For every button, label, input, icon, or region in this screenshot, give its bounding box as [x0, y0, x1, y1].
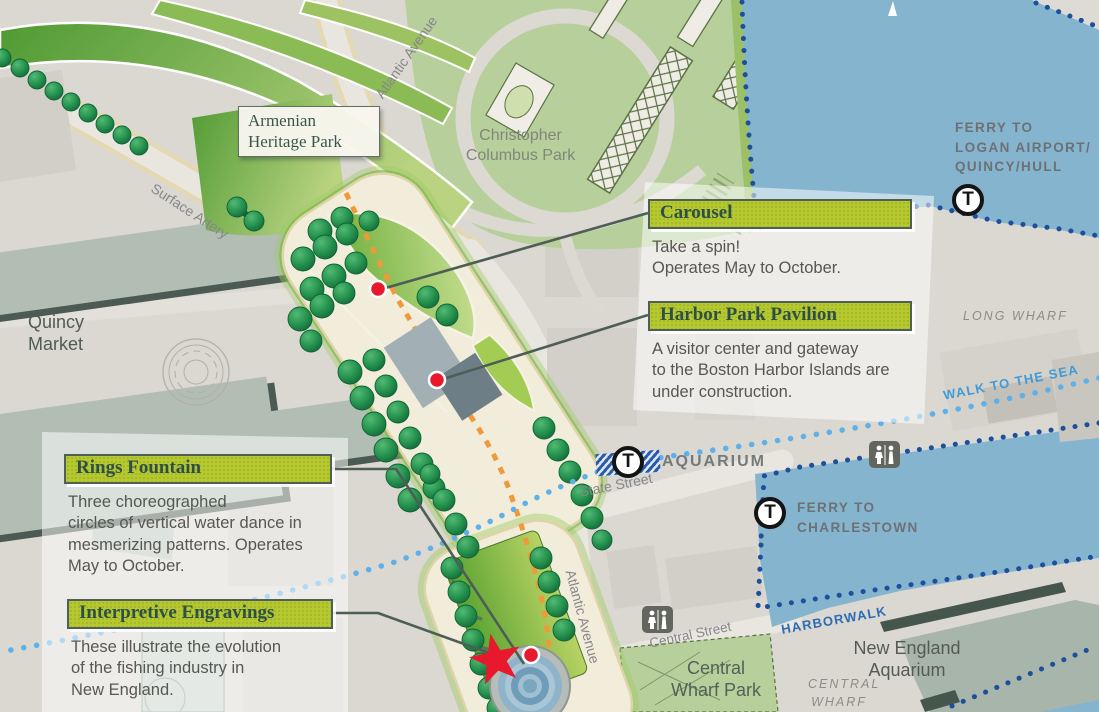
restroom-icon: [642, 606, 673, 633]
pavilion-marker[interactable]: [429, 372, 445, 388]
callout-engravings-body: These illustrate the evolution of the fi…: [71, 637, 281, 701]
ferry-charlestown-label: FERRY TO CHARLESTOWN: [797, 498, 919, 537]
callout-carousel-header[interactable]: Carousel: [648, 199, 912, 229]
restroom-icon: [869, 441, 900, 468]
quincy-market-label: Quincy Market: [28, 312, 84, 356]
fountain-marker[interactable]: [523, 647, 539, 663]
callout-pavilion-body: A visitor center and gateway to the Bost…: [652, 339, 890, 403]
armenian-heritage-park-label: Armenian Heritage Park: [238, 106, 380, 157]
t-station-aquarium-icon[interactable]: T: [612, 446, 644, 478]
aquarium-station-label: AQUARIUM: [662, 452, 766, 472]
restroom-glyphs: [646, 610, 670, 630]
ne-aquarium-label: New England Aquarium: [846, 638, 968, 682]
greenway-map: Armenian Heritage Park Christopher Colum…: [0, 0, 1099, 712]
t-letter: T: [622, 451, 634, 473]
t-letter: T: [962, 189, 974, 211]
central-wharf-park-label: Central Wharf Park: [658, 658, 774, 702]
t-letter: T: [764, 502, 776, 524]
callout-pavilion-header[interactable]: Harbor Park Pavilion: [648, 301, 912, 331]
callout-carousel-body: Take a spin! Operates May to October.: [652, 237, 841, 280]
t-station-logan-ferry-icon[interactable]: T: [952, 184, 984, 216]
callout-engravings-header[interactable]: Interpretive Engravings: [67, 599, 333, 629]
restroom-glyphs: [873, 445, 897, 465]
columbus-park-label: Christopher Columbus Park: [428, 126, 613, 165]
callout-rings-header[interactable]: Rings Fountain: [64, 454, 332, 484]
ferry-logan-label: FERRY TO LOGAN AIRPORT/ QUINCY/HULL: [955, 118, 1091, 177]
carousel-marker[interactable]: [370, 281, 386, 297]
callout-rings-body: Three choreographed circles of vertical …: [68, 492, 303, 578]
t-station-charlestown-ferry-icon[interactable]: T: [754, 497, 786, 529]
long-wharf-label: LONG WHARF: [963, 309, 1068, 324]
